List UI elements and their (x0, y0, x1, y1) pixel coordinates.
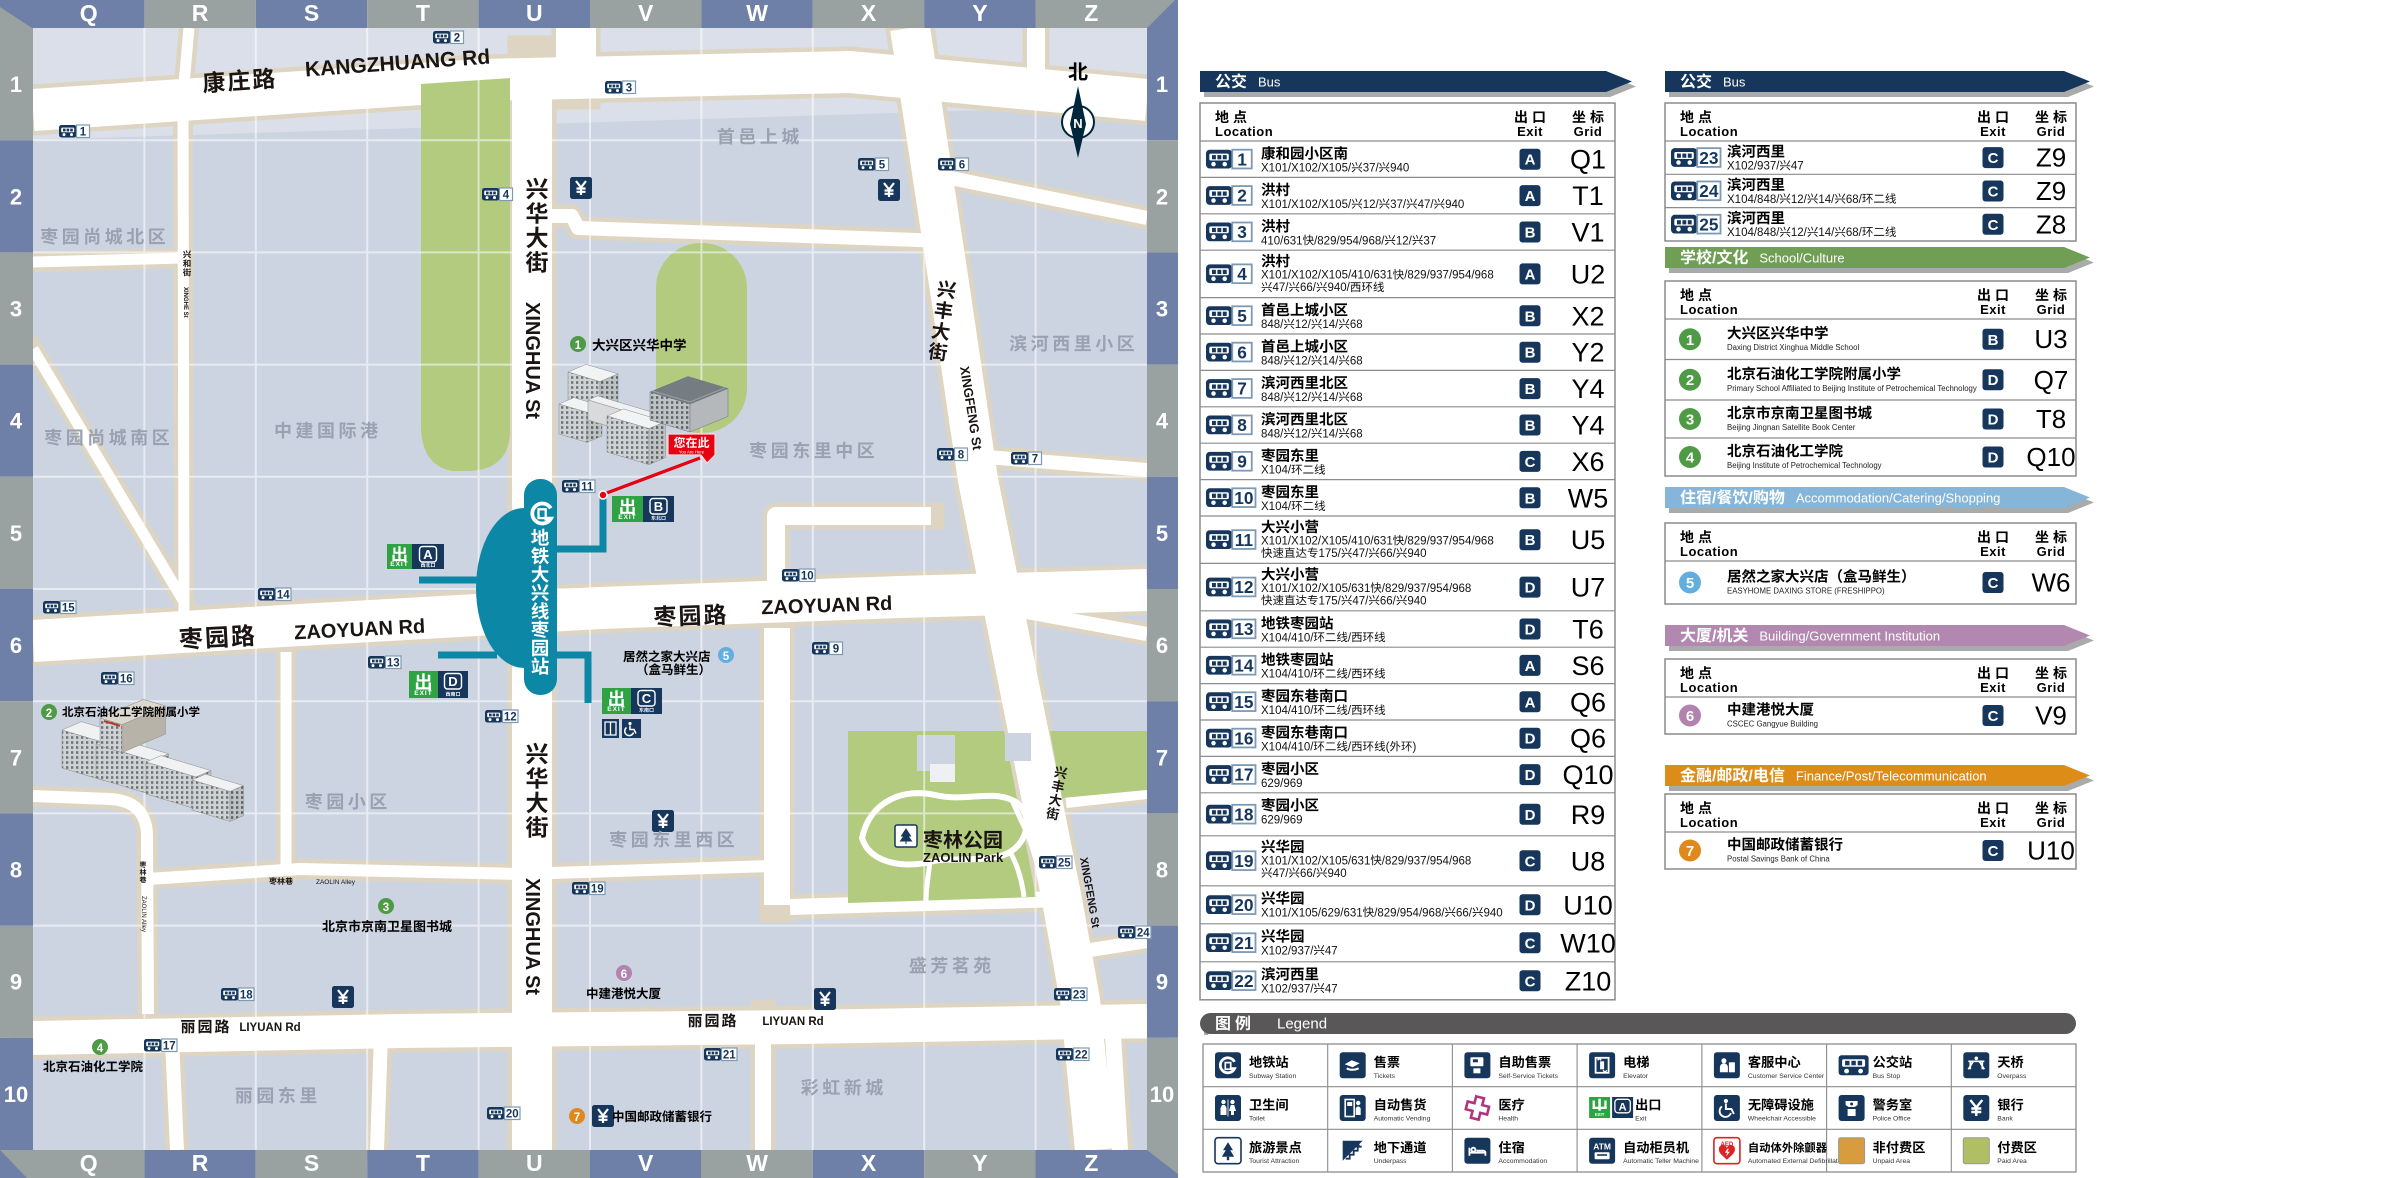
svg-text:Elevator: Elevator (1623, 1073, 1649, 1080)
svg-text:12/: 12/ (1295, 428, 1312, 440)
svg-text:EASYHOME DAXING STORE (FRESHIP: EASYHOME DAXING STORE (FRESHIPPO) (1727, 587, 1885, 596)
svg-text:Bus: Bus (1723, 75, 1746, 90)
svg-text:23: 23 (1073, 989, 1086, 1001)
svg-text:4: 4 (1237, 264, 1247, 284)
svg-text:66/: 66/ (1300, 868, 1317, 880)
svg-text:Z9: Z9 (2036, 176, 2066, 206)
svg-text:20: 20 (506, 1108, 519, 1120)
svg-text:9: 9 (833, 643, 839, 655)
svg-text:Legend: Legend (1277, 1016, 1327, 1033)
svg-text:848/: 848/ (1261, 319, 1284, 331)
svg-text:Q: Q (80, 1150, 98, 1176)
svg-text:U2: U2 (1571, 259, 1606, 289)
svg-text:47/: 47/ (1418, 199, 1435, 211)
svg-text:4: 4 (10, 409, 23, 434)
svg-text:1: 1 (80, 126, 87, 138)
svg-text:12/: 12/ (1295, 356, 1312, 368)
svg-text:ZAOLIN Park: ZAOLIN Park (923, 850, 1004, 865)
svg-text:XINGHE St: XINGHE St (182, 287, 188, 318)
svg-text:Police Office: Police Office (1873, 1116, 1911, 1123)
svg-text:47/: 47/ (1352, 548, 1369, 560)
svg-text:175/: 175/ (1319, 595, 1342, 607)
svg-text:848/: 848/ (1261, 356, 1284, 368)
svg-text:Grid: Grid (2037, 302, 2066, 317)
svg-text:14/: 14/ (1322, 392, 1339, 404)
svg-text:Subway Station: Subway Station (1249, 1073, 1296, 1080)
svg-text:X104/: X104/ (1261, 501, 1292, 513)
svg-text:940: 940 (1484, 907, 1503, 919)
svg-text:D: D (1525, 807, 1536, 824)
svg-text:940: 940 (1328, 868, 1347, 880)
svg-text:W5: W5 (1568, 483, 1609, 513)
svg-text:A: A (423, 547, 433, 562)
svg-text:Building/Government Institutio: Building/Government Institution (1759, 629, 1940, 644)
svg-text:68: 68 (1350, 356, 1363, 368)
svg-text:Bus: Bus (1258, 75, 1281, 90)
svg-text:C: C (1525, 935, 1536, 952)
svg-text:U7: U7 (1571, 573, 1606, 603)
svg-text:ZAOLIN Alley: ZAOLIN Alley (140, 896, 146, 932)
svg-text:Self-Service Tickets: Self-Service Tickets (1498, 1073, 1558, 1080)
svg-text:You Are Here: You Are Here (679, 450, 705, 455)
svg-text:4: 4 (503, 189, 510, 201)
svg-text:C: C (642, 691, 652, 706)
svg-text:Automated External Defibrillat: Automated External Defibrillator (1748, 1158, 1845, 1165)
svg-text:9: 9 (1156, 970, 1168, 995)
svg-text:X104/: X104/ (1261, 465, 1292, 477)
svg-text:12/: 12/ (1295, 392, 1312, 404)
svg-text:Location: Location (1680, 544, 1738, 559)
svg-text:Automatic Teller Machine: Automatic Teller Machine (1623, 1158, 1699, 1165)
svg-text:1: 1 (1156, 72, 1168, 97)
svg-text:66/: 66/ (1300, 282, 1317, 294)
svg-text:B: B (654, 499, 663, 514)
svg-text:C: C (1988, 575, 1999, 592)
svg-text:Exit: Exit (1980, 815, 2006, 830)
svg-text:D: D (1988, 372, 1999, 389)
svg-text:6: 6 (1686, 708, 1694, 725)
svg-text:X104/410/: X104/410/ (1261, 742, 1314, 754)
svg-text:R9: R9 (1571, 800, 1606, 830)
svg-text:N: N (1073, 116, 1082, 131)
svg-text:Q: Q (80, 0, 98, 26)
svg-text:16: 16 (120, 673, 133, 685)
svg-text:X104/410/: X104/410/ (1261, 669, 1314, 681)
svg-text:V9: V9 (2035, 701, 2067, 731)
svg-text:/: / (1712, 768, 1717, 785)
svg-text:X104/848/: X104/848/ (1727, 194, 1780, 206)
svg-text:Location: Location (1680, 124, 1738, 139)
svg-text:Bus Stop: Bus Stop (1873, 1073, 1901, 1080)
svg-text:U3: U3 (2034, 324, 2067, 354)
svg-text:4: 4 (1686, 450, 1695, 467)
svg-text:4: 4 (1156, 409, 1169, 434)
svg-text:X101/X102/X105/410/631: X101/X102/X105/410/631 (1261, 536, 1393, 548)
svg-text:Q1: Q1 (1570, 145, 1606, 175)
svg-text:14/: 14/ (1322, 319, 1339, 331)
svg-text:20: 20 (1234, 895, 1253, 915)
svg-text:Grid: Grid (2037, 815, 2066, 830)
svg-text:U5: U5 (1571, 525, 1606, 555)
svg-text:Z8: Z8 (2036, 209, 2066, 239)
svg-text:1: 1 (10, 72, 22, 97)
svg-text:U8: U8 (1571, 846, 1606, 876)
svg-text:X6: X6 (1571, 447, 1604, 477)
svg-text:LIYUAN Rd: LIYUAN Rd (239, 1022, 300, 1034)
svg-text:T1: T1 (1572, 181, 1604, 211)
svg-text:14: 14 (1234, 656, 1254, 676)
svg-text:5: 5 (723, 651, 730, 663)
svg-text:14/: 14/ (1322, 356, 1339, 368)
svg-text:Exit: Exit (1635, 1116, 1646, 1123)
svg-text:/829/937/954/968: /829/937/954/968 (1404, 536, 1494, 548)
svg-text:EXIT: EXIT (414, 690, 432, 697)
svg-text:Location: Location (1680, 815, 1738, 830)
svg-text:A: A (1525, 188, 1536, 205)
svg-text:Postal Savings Bank of China: Postal Savings Bank of China (1727, 855, 1830, 864)
svg-text:/: / (1712, 250, 1717, 267)
svg-text:Health: Health (1498, 1116, 1518, 1123)
svg-text:D: D (1525, 767, 1536, 784)
svg-text:EXIT: EXIT (607, 706, 625, 713)
svg-text:Tourist Attraction: Tourist Attraction (1249, 1158, 1299, 1165)
svg-text:Unpaid Area: Unpaid Area (1873, 1158, 1911, 1165)
svg-text:W: W (746, 0, 768, 26)
svg-text:37/: 37/ (1363, 163, 1380, 175)
svg-text:24: 24 (1699, 181, 1719, 201)
svg-text:X104/410/: X104/410/ (1261, 705, 1314, 717)
svg-text:Underpass: Underpass (1374, 1158, 1407, 1165)
svg-text:Z9: Z9 (2036, 143, 2066, 173)
svg-text:D: D (1525, 580, 1536, 597)
svg-text:U: U (526, 0, 543, 26)
svg-text:XINGHUA St: XINGHUA St (521, 878, 543, 995)
svg-text:10: 10 (801, 570, 814, 582)
svg-text:/: / (1712, 490, 1717, 507)
svg-text:2: 2 (454, 32, 460, 44)
svg-text:X104/410/: X104/410/ (1261, 632, 1314, 644)
svg-text:D: D (448, 674, 457, 689)
svg-text:848/: 848/ (1261, 392, 1284, 404)
svg-text:12/: 12/ (1295, 319, 1312, 331)
svg-text:7: 7 (10, 745, 22, 770)
svg-text:A: A (1525, 658, 1536, 675)
svg-text:Primary School Affiliated to B: Primary School Affiliated to Beijing Ins… (1727, 384, 1977, 393)
svg-text:B: B (1525, 381, 1536, 398)
svg-text:12/: 12/ (1363, 199, 1380, 211)
svg-text:47: 47 (1325, 945, 1338, 957)
svg-text:11: 11 (581, 481, 594, 493)
svg-text:12: 12 (1234, 577, 1253, 597)
svg-text:Y4: Y4 (1571, 411, 1604, 441)
svg-text:2: 2 (1686, 372, 1694, 389)
svg-text:X101/X102/X105/631: X101/X102/X105/631 (1261, 583, 1370, 595)
svg-text:C: C (1525, 454, 1536, 471)
svg-text:A: A (1525, 694, 1536, 711)
svg-text:/: / (1712, 628, 1717, 645)
svg-text:X102/937/: X102/937/ (1727, 161, 1780, 173)
svg-text:/829/937/954/968: /829/937/954/968 (1382, 583, 1472, 595)
svg-text:629/969: 629/969 (1261, 814, 1303, 826)
svg-text:22: 22 (1075, 1049, 1088, 1061)
svg-text:Toilet: Toilet (1249, 1116, 1265, 1123)
svg-text:6: 6 (621, 969, 627, 981)
svg-text:175/: 175/ (1319, 548, 1342, 560)
svg-text:12/: 12/ (1791, 227, 1808, 239)
svg-text:S6: S6 (1571, 651, 1604, 681)
svg-text:U: U (526, 1150, 543, 1176)
svg-text:T6: T6 (1572, 615, 1604, 645)
svg-text:22: 22 (1234, 971, 1253, 991)
svg-text:): ) (1413, 742, 1417, 754)
svg-text:Exit: Exit (1517, 124, 1543, 139)
svg-text:B: B (1525, 345, 1536, 362)
svg-text:C: C (1988, 843, 1999, 860)
svg-text:10: 10 (1150, 1082, 1174, 1107)
svg-text:14/: 14/ (1818, 194, 1835, 206)
svg-text:A: A (1619, 1101, 1627, 1113)
svg-text:Daxing District Xinghua Middle: Daxing District Xinghua Middle School (1727, 343, 1859, 352)
svg-text:940: 940 (1407, 548, 1426, 560)
svg-text:V: V (638, 0, 654, 26)
svg-text:B: B (1525, 308, 1536, 325)
svg-text:7: 7 (1156, 745, 1168, 770)
svg-text:2: 2 (10, 184, 22, 209)
svg-text:17: 17 (163, 1040, 176, 1052)
svg-text:X102/937/: X102/937/ (1261, 983, 1314, 995)
svg-text:Exit: Exit (1980, 124, 2006, 139)
svg-text:1: 1 (1237, 149, 1247, 169)
svg-text:V1: V1 (1571, 218, 1604, 248)
svg-text:Q6: Q6 (1570, 687, 1606, 717)
svg-text:Q10: Q10 (2026, 442, 2075, 472)
svg-text:School/Culture: School/Culture (1759, 251, 1844, 266)
svg-text:629/969: 629/969 (1261, 778, 1303, 790)
svg-text:Wheelchair Accessible: Wheelchair Accessible (1748, 1116, 1816, 1123)
svg-text:21: 21 (723, 1049, 736, 1061)
svg-text:940: 940 (1445, 199, 1464, 211)
svg-text:T: T (416, 0, 430, 26)
svg-text:Location: Location (1680, 680, 1738, 695)
svg-text:Bank: Bank (1997, 1116, 2013, 1123)
svg-text:13: 13 (387, 657, 400, 669)
svg-text:LIYUAN Rd: LIYUAN Rd (762, 1016, 823, 1028)
svg-text:XINGHUA St: XINGHUA St (521, 302, 543, 419)
svg-text:T8: T8 (2036, 404, 2066, 434)
svg-text:68/: 68/ (1846, 194, 1863, 206)
svg-text:3: 3 (10, 297, 22, 322)
svg-text:ATM: ATM (1593, 1142, 1611, 1152)
svg-text:EXIT: EXIT (390, 561, 408, 568)
svg-text:Accommodation/Catering/Shoppin: Accommodation/Catering/Shopping (1796, 491, 2001, 506)
svg-text:D: D (1525, 897, 1536, 914)
svg-text:14/: 14/ (1322, 428, 1339, 440)
svg-text:940: 940 (1390, 163, 1409, 175)
svg-text:/829/954/968/: /829/954/968/ (1374, 907, 1445, 919)
svg-text:Q6: Q6 (1570, 724, 1606, 754)
svg-text:Overpass: Overpass (1997, 1073, 2027, 1080)
svg-text:W10: W10 (1560, 928, 1616, 958)
svg-text:940: 940 (1407, 595, 1426, 607)
svg-text:15: 15 (62, 602, 75, 614)
svg-text:X: X (861, 1150, 877, 1176)
svg-text:5: 5 (1686, 575, 1694, 592)
svg-text:W: W (746, 1150, 768, 1176)
svg-text:8: 8 (10, 858, 22, 883)
svg-text:X101/X102/X105/410/631: X101/X102/X105/410/631 (1261, 270, 1393, 282)
svg-text:5: 5 (879, 159, 886, 171)
svg-text:Automatic Vending: Automatic Vending (1374, 1116, 1431, 1123)
svg-text:S: S (304, 1150, 319, 1176)
svg-text:Grid: Grid (2037, 544, 2066, 559)
svg-text:5: 5 (10, 521, 22, 546)
svg-text:Beijing Institute of Petrochem: Beijing Institute of Petrochemical Techn… (1727, 461, 1882, 470)
svg-text:47/: 47/ (1273, 282, 1290, 294)
svg-text:Z10: Z10 (1565, 966, 1612, 996)
svg-text:Finance/Post/Telecommunication: Finance/Post/Telecommunication (1796, 769, 1987, 784)
svg-text:14/: 14/ (1818, 227, 1835, 239)
svg-text:EXIT: EXIT (618, 514, 636, 521)
svg-text:16: 16 (1234, 728, 1253, 748)
svg-text:6: 6 (10, 633, 22, 658)
svg-text:1: 1 (575, 340, 582, 352)
svg-text:CSCEC Gangyue Building: CSCEC Gangyue Building (1727, 720, 1818, 729)
svg-text:37: 37 (1423, 235, 1436, 247)
svg-text:3: 3 (1686, 412, 1694, 429)
svg-text:U10: U10 (1563, 890, 1613, 920)
svg-text:Q10: Q10 (1562, 760, 1613, 790)
svg-text:2: 2 (1156, 184, 1168, 209)
svg-text:Location: Location (1680, 302, 1738, 317)
svg-text:37/: 37/ (1390, 199, 1407, 211)
svg-text:B: B (1525, 490, 1536, 507)
svg-text:6: 6 (1237, 342, 1247, 362)
svg-text:7: 7 (1032, 453, 1038, 465)
svg-text:3: 3 (383, 902, 389, 914)
svg-text:2: 2 (1237, 186, 1247, 206)
svg-text:Grid: Grid (2037, 124, 2066, 139)
svg-text:T: T (416, 1150, 430, 1176)
svg-text:/829/937/954/968: /829/937/954/968 (1404, 270, 1494, 282)
svg-text:/: / (1748, 490, 1753, 507)
svg-text:410/631: 410/631 (1261, 235, 1303, 247)
svg-text:19: 19 (1234, 851, 1253, 871)
svg-text:Y4: Y4 (1571, 374, 1604, 404)
svg-text:66/: 66/ (1380, 595, 1397, 607)
svg-text:/829/954/968/: /829/954/968/ (1314, 235, 1385, 247)
svg-text:66/: 66/ (1380, 548, 1397, 560)
svg-text:24: 24 (1137, 927, 1150, 939)
svg-text:Y2: Y2 (1571, 338, 1604, 368)
svg-text:X104/848/: X104/848/ (1727, 227, 1780, 239)
svg-text:C: C (1988, 708, 1999, 725)
svg-text:B: B (1525, 532, 1536, 549)
svg-text:X101/X102/X105/: X101/X102/X105/ (1261, 199, 1352, 211)
svg-text:11: 11 (1235, 530, 1254, 550)
svg-text:68/: 68/ (1846, 227, 1863, 239)
svg-text:47/: 47/ (1352, 595, 1369, 607)
svg-text:/829/937/954/968: /829/937/954/968 (1382, 855, 1472, 867)
svg-text:Tickets: Tickets (1374, 1073, 1396, 1080)
svg-text:D: D (1525, 731, 1536, 748)
svg-text:6: 6 (1156, 633, 1168, 658)
svg-text:(: ( (1386, 742, 1390, 754)
svg-text:Exit: Exit (1980, 302, 2006, 317)
svg-text:25: 25 (1699, 214, 1719, 234)
svg-text:Grid: Grid (1574, 124, 1603, 139)
svg-text:848/: 848/ (1261, 428, 1284, 440)
svg-text:14: 14 (277, 589, 290, 601)
svg-text:R: R (192, 1150, 209, 1176)
svg-text:7: 7 (574, 1112, 580, 1124)
svg-text:47: 47 (1791, 161, 1804, 173)
svg-text:X2: X2 (1571, 301, 1604, 331)
svg-text:R: R (192, 0, 209, 26)
svg-text:4: 4 (97, 1043, 104, 1055)
svg-text:D: D (1988, 412, 1999, 429)
svg-text:10: 10 (4, 1082, 28, 1107)
svg-text:10: 10 (1234, 488, 1253, 508)
svg-text:B: B (1988, 332, 1999, 349)
svg-text:EXIT: EXIT (1595, 1112, 1605, 1117)
svg-text:Customer Service Center: Customer Service Center (1748, 1073, 1825, 1080)
svg-text:2: 2 (46, 708, 52, 720)
svg-text:Exit: Exit (1980, 680, 2006, 695)
svg-text:8: 8 (958, 449, 965, 461)
svg-text:12/: 12/ (1396, 235, 1413, 247)
svg-text:1: 1 (1686, 332, 1694, 349)
svg-text:6: 6 (959, 159, 965, 171)
svg-text:18: 18 (240, 989, 253, 1001)
svg-text:3: 3 (626, 82, 632, 94)
svg-text:7: 7 (1686, 843, 1694, 860)
svg-text:12: 12 (504, 711, 517, 723)
svg-text:17: 17 (1234, 765, 1253, 785)
svg-text:B: B (1525, 418, 1536, 435)
svg-text:8: 8 (1237, 415, 1247, 435)
svg-text:Y: Y (972, 1150, 987, 1176)
svg-text:Z: Z (1084, 0, 1098, 26)
svg-text:B: B (1525, 225, 1536, 242)
svg-text:Y: Y (972, 0, 987, 26)
svg-text:C: C (1525, 853, 1536, 870)
svg-text:9: 9 (1237, 452, 1247, 472)
svg-text:S: S (304, 0, 319, 26)
svg-text:25: 25 (1058, 857, 1071, 869)
svg-text:W6: W6 (2032, 568, 2071, 598)
svg-text:5: 5 (1156, 521, 1168, 546)
svg-text:X101/X102/X105/: X101/X102/X105/ (1261, 163, 1352, 175)
svg-text:Grid: Grid (2037, 680, 2066, 695)
svg-text:21: 21 (1234, 933, 1254, 953)
svg-text:X101/X102/X105/631: X101/X102/X105/631 (1261, 855, 1370, 867)
svg-text:68: 68 (1350, 428, 1363, 440)
svg-text:15: 15 (1234, 692, 1254, 712)
svg-text:C: C (1525, 973, 1536, 990)
svg-text:68: 68 (1350, 392, 1363, 404)
svg-text:Beijing Jingnan Satellite Book: Beijing Jingnan Satellite Book Center (1727, 423, 1856, 432)
svg-text:D: D (1988, 450, 1999, 467)
svg-text:Paid Area: Paid Area (1997, 1158, 2027, 1165)
svg-text:23: 23 (1699, 148, 1718, 168)
svg-text:D: D (1525, 622, 1536, 639)
svg-text:7: 7 (1237, 379, 1247, 399)
svg-text:3: 3 (1156, 297, 1168, 322)
svg-text:X101/X105/629/631: X101/X105/629/631 (1261, 907, 1363, 919)
svg-text:U10: U10 (2027, 836, 2075, 866)
svg-text:C: C (1988, 183, 1999, 200)
svg-text:12/: 12/ (1791, 194, 1808, 206)
